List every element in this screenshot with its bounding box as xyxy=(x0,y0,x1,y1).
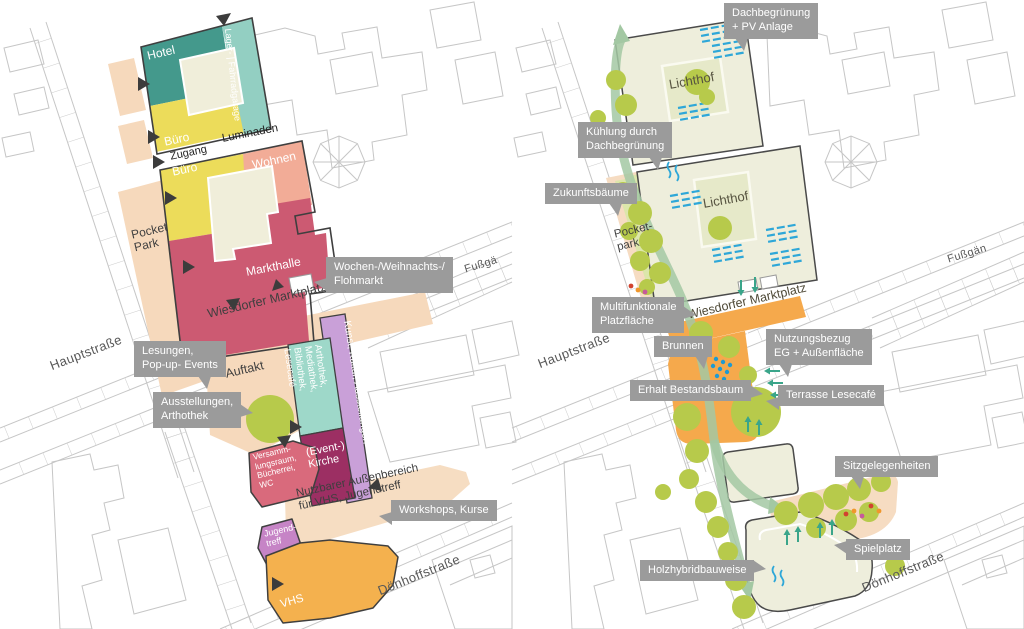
neubau-mitte xyxy=(723,444,798,502)
site-plan-comparison: Hotel Lager- | Fahrradgarage Büro Zugang… xyxy=(0,0,1024,629)
callout-pointer xyxy=(198,376,211,389)
callout-pointer xyxy=(695,356,708,369)
callout-pointer xyxy=(753,560,766,573)
vhs-blob xyxy=(266,540,398,623)
tree-icon xyxy=(649,262,671,284)
callout-sitzgelegenheiten: Sitzgelegenheiten xyxy=(835,456,938,477)
left-program-plan xyxy=(108,13,470,623)
callout-holzhybrid: Holzhybridbauweise xyxy=(640,560,754,581)
plan-canvas xyxy=(0,0,1024,629)
callout-pointer xyxy=(779,364,792,377)
entrance-arrow xyxy=(153,155,165,169)
tree-icon xyxy=(823,484,849,510)
callout-kuehlung: Kühlung durch Dachbegrünung xyxy=(578,122,672,158)
callout-brunnen: Brunnen xyxy=(654,336,712,357)
tree-icon xyxy=(708,216,732,240)
callout-pointer xyxy=(609,203,622,216)
tree-icon xyxy=(679,469,699,489)
callout-pointer xyxy=(683,306,696,319)
tree-icon xyxy=(732,595,756,619)
tree-icon xyxy=(639,229,663,253)
tree-icon xyxy=(718,336,740,358)
callout-pointer xyxy=(735,38,748,51)
tree-icon xyxy=(695,491,717,513)
tree-icon xyxy=(620,222,638,240)
callout-pointer xyxy=(379,512,392,525)
callout-nutzungsbezug: Nutzungsbezug EG + Außenfläche xyxy=(766,329,872,365)
callout-dachbegruenung: Dachbegrünung + PV Anlage xyxy=(724,3,818,39)
tree-icon xyxy=(774,501,798,525)
callout-pointer xyxy=(649,157,662,170)
callout-pointer xyxy=(240,404,253,417)
tree-icon xyxy=(718,542,738,562)
callout-flohmarkt: Wochen-/Weihnachts-/ Flohmarkt xyxy=(326,257,453,293)
callout-erhalt: Erhalt Bestandsbaum xyxy=(630,380,751,401)
callout-lesungen: Lesungen, Pop-up- Events xyxy=(134,341,226,377)
hof-oben xyxy=(180,48,243,115)
callout-pointer xyxy=(750,385,763,398)
callout-terrasse: Terrasse Lesecafé xyxy=(778,385,884,406)
tree-icon xyxy=(655,484,671,500)
callout-pointer xyxy=(851,476,864,489)
tree-icon xyxy=(707,516,729,538)
tree-icon xyxy=(798,492,824,518)
tree-icon xyxy=(630,251,650,271)
tree-icon xyxy=(615,94,637,116)
callout-spielplatz: Spielplatz xyxy=(846,539,910,560)
callout-pointer xyxy=(766,397,779,410)
market-stall xyxy=(760,275,778,289)
tree-icon xyxy=(699,89,715,105)
tree-icon xyxy=(628,201,652,225)
callout-workshops: Workshops, Kurse xyxy=(391,500,497,521)
tree-icon xyxy=(606,70,626,90)
market-stall xyxy=(289,274,314,294)
callout-ausstellungen: Ausstellungen, Arthothek xyxy=(153,392,241,428)
callout-multifunktional: Multifunktionale Platzfläche xyxy=(592,297,684,333)
open-space-strip-2 xyxy=(118,120,153,164)
callout-pointer xyxy=(834,541,847,554)
callout-pointer xyxy=(314,278,327,291)
callout-zukunftsbaeume: Zukunftsbäume xyxy=(545,183,637,204)
tree-icon xyxy=(673,403,701,431)
tree-icon xyxy=(685,439,709,463)
